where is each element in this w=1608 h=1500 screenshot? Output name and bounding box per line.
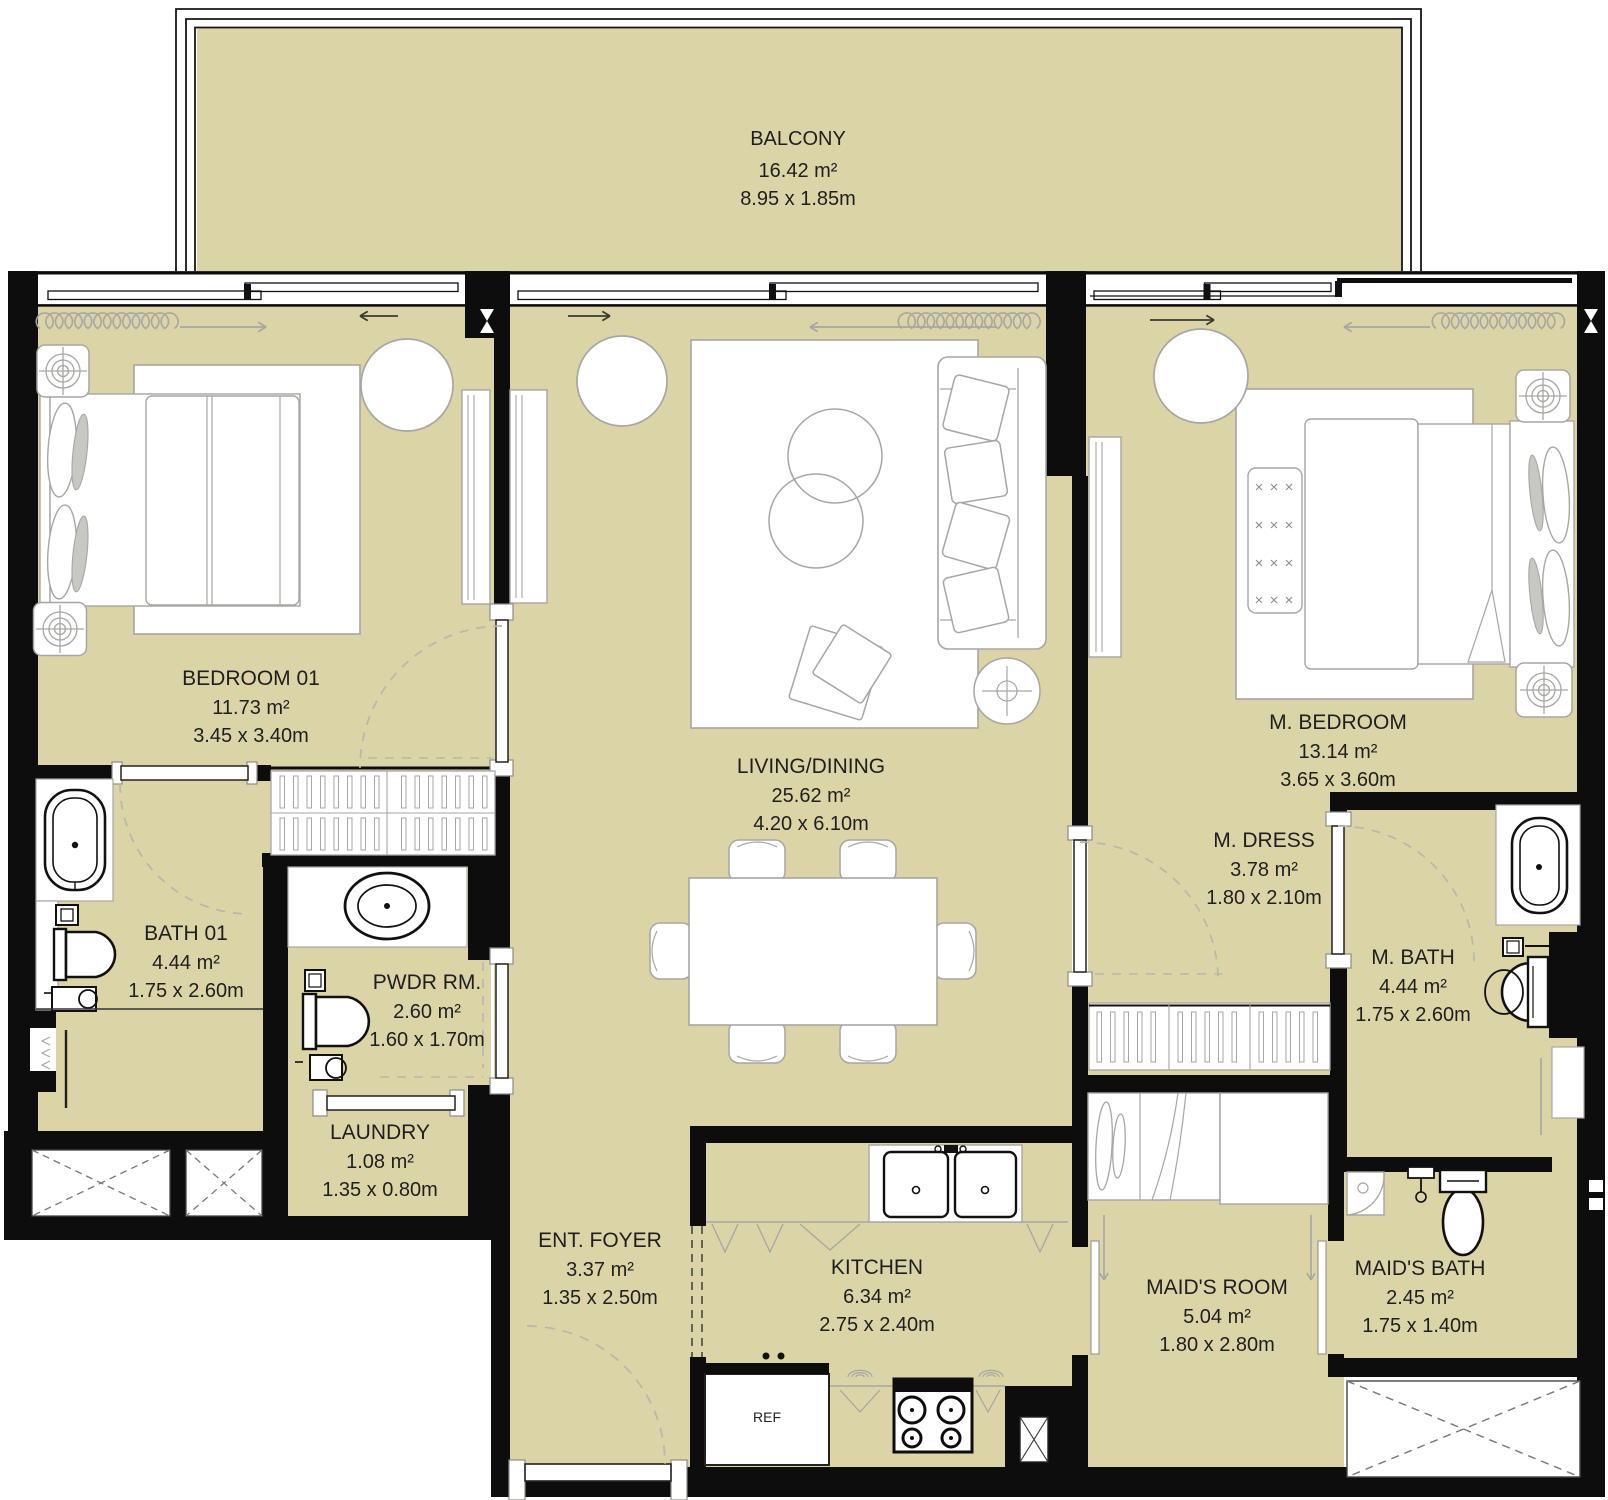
svg-text:13.14 m²: 13.14 m² bbox=[1299, 741, 1378, 763]
svg-text:LIVING/DINING: LIVING/DINING bbox=[737, 755, 885, 778]
svg-text:8.95 x 1.85m: 8.95 x 1.85m bbox=[740, 188, 856, 210]
svg-text:4.44 m²: 4.44 m² bbox=[1379, 976, 1447, 998]
svg-text:M. DRESS: M. DRESS bbox=[1213, 829, 1315, 852]
svg-text:PWDR RM.: PWDR RM. bbox=[373, 971, 482, 994]
svg-text:1.35 x 2.50m: 1.35 x 2.50m bbox=[542, 1287, 658, 1309]
svg-text:KITCHEN: KITCHEN bbox=[831, 1256, 923, 1279]
svg-text:1.08 m²: 1.08 m² bbox=[346, 1151, 414, 1173]
svg-text:BEDROOM 01: BEDROOM 01 bbox=[182, 667, 320, 690]
svg-text:MAID'S ROOM: MAID'S ROOM bbox=[1146, 1276, 1288, 1299]
svg-text:1.60 x 1.70m: 1.60 x 1.70m bbox=[369, 1029, 485, 1051]
svg-text:16.42 m²: 16.42 m² bbox=[759, 160, 838, 182]
svg-text:BALCONY: BALCONY bbox=[750, 128, 846, 150]
svg-text:1.75 x 2.60m: 1.75 x 2.60m bbox=[1355, 1004, 1471, 1026]
svg-text:3.78 m²: 3.78 m² bbox=[1230, 859, 1298, 881]
svg-text:11.73 m²: 11.73 m² bbox=[212, 697, 290, 719]
svg-text:3.37 m²: 3.37 m² bbox=[566, 1259, 634, 1281]
svg-text:2.45 m²: 2.45 m² bbox=[1386, 1287, 1454, 1309]
svg-text:ENT. FOYER: ENT. FOYER bbox=[538, 1229, 662, 1252]
svg-text:2.60 m²: 2.60 m² bbox=[393, 1001, 461, 1023]
svg-text:1.75 x 1.40m: 1.75 x 1.40m bbox=[1362, 1315, 1478, 1337]
svg-text:4.20 x 6.10m: 4.20 x 6.10m bbox=[753, 813, 869, 835]
svg-text:LAUNDRY: LAUNDRY bbox=[330, 1121, 430, 1144]
svg-text:25.62 m²: 25.62 m² bbox=[772, 785, 851, 807]
svg-text:1.75 x 2.60m: 1.75 x 2.60m bbox=[128, 980, 244, 1002]
svg-text:1.80 x 2.10m: 1.80 x 2.10m bbox=[1206, 887, 1322, 909]
svg-text:2.75 x 2.40m: 2.75 x 2.40m bbox=[819, 1314, 935, 1336]
svg-text:REF: REF bbox=[753, 1409, 781, 1425]
svg-text:4.44 m²: 4.44 m² bbox=[152, 952, 220, 974]
svg-text:1.35 x 0.80m: 1.35 x 0.80m bbox=[322, 1179, 438, 1201]
svg-text:5.04 m²: 5.04 m² bbox=[1183, 1306, 1251, 1328]
svg-text:M. BEDROOM: M. BEDROOM bbox=[1269, 711, 1407, 734]
svg-text:3.45 x 3.40m: 3.45 x 3.40m bbox=[193, 725, 309, 747]
svg-text:1.80 x 2.80m: 1.80 x 2.80m bbox=[1159, 1334, 1275, 1356]
svg-text:BATH 01: BATH 01 bbox=[144, 922, 228, 945]
svg-text:M. BATH: M. BATH bbox=[1371, 946, 1455, 969]
svg-text:3.65 x 3.60m: 3.65 x 3.60m bbox=[1280, 769, 1396, 791]
svg-text:6.34 m²: 6.34 m² bbox=[843, 1286, 911, 1308]
svg-text:MAID'S BATH: MAID'S BATH bbox=[1355, 1257, 1486, 1280]
